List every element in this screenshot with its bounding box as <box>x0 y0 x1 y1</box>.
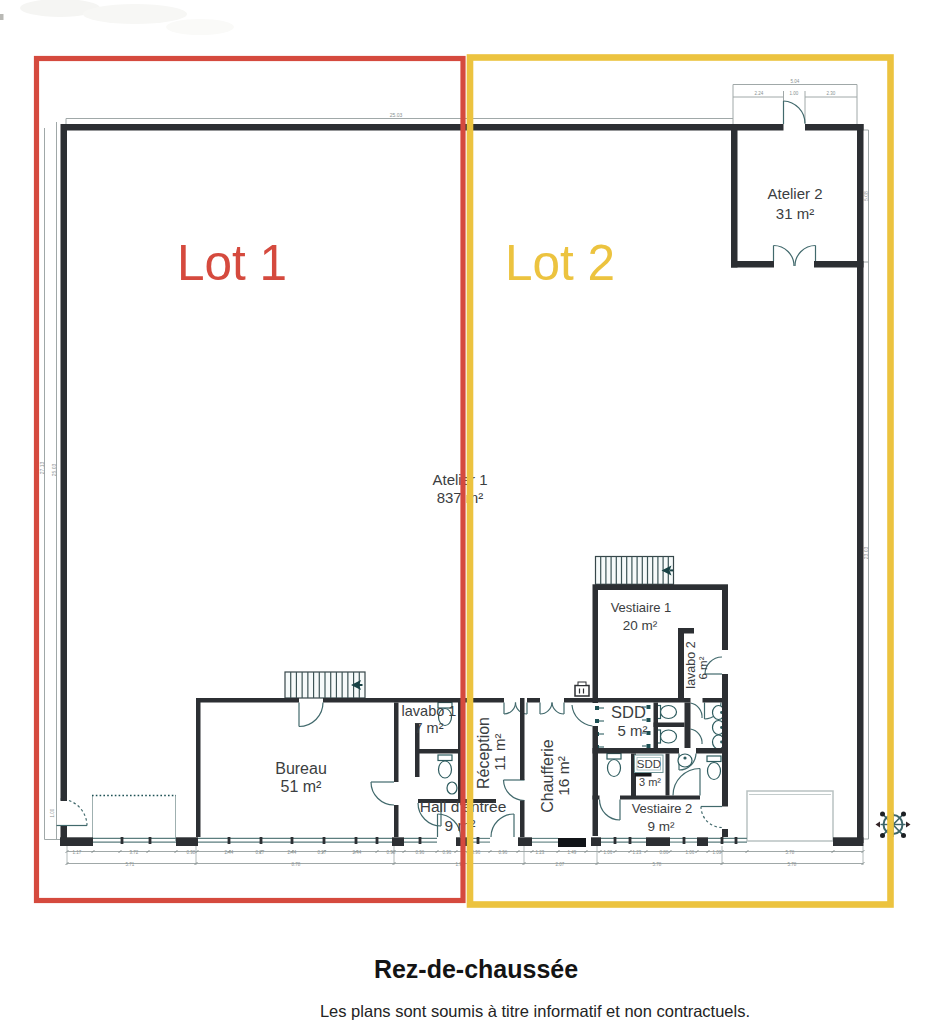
svg-text:0.98: 0.98 <box>387 850 396 855</box>
svg-text:31 m²: 31 m² <box>776 205 814 222</box>
svg-text:2.30: 2.30 <box>827 91 836 96</box>
svg-text:SDD: SDD <box>637 758 661 770</box>
svg-text:1.00: 1.00 <box>713 850 722 855</box>
svg-text:Lot 1: Lot 1 <box>177 235 287 290</box>
svg-text:SDD: SDD <box>611 703 646 721</box>
svg-text:5.78: 5.78 <box>788 862 797 867</box>
svg-text:6 m²: 6 m² <box>697 656 709 679</box>
svg-text:Chaufferie: Chaufferie <box>539 739 556 813</box>
svg-text:1.17: 1.17 <box>73 850 82 855</box>
svg-text:1.06: 1.06 <box>686 850 695 855</box>
svg-text:lavabo 1: lavabo 1 <box>402 703 457 719</box>
svg-text:5.78: 5.78 <box>653 862 662 867</box>
svg-text:0.96: 0.96 <box>499 850 508 855</box>
svg-text:Bureau: Bureau <box>275 760 327 777</box>
svg-text:Vestiaire 1: Vestiaire 1 <box>611 600 672 615</box>
svg-text:1.00: 1.00 <box>790 91 799 96</box>
svg-text:27.13: 27.13 <box>39 462 45 475</box>
svg-text:5.78: 5.78 <box>786 850 795 855</box>
svg-text:1.00: 1.00 <box>50 808 55 817</box>
svg-text:3 m²: 3 m² <box>639 776 661 788</box>
svg-text:Lot 2: Lot 2 <box>505 235 615 290</box>
svg-text:Vestiaire 2: Vestiaire 2 <box>632 801 693 816</box>
svg-text:5 m²: 5 m² <box>618 722 648 739</box>
svg-text:25.03: 25.03 <box>390 112 403 118</box>
svg-text:9 m²: 9 m² <box>648 819 676 834</box>
svg-text:16 m²: 16 m² <box>555 756 572 796</box>
svg-text:5.71: 5.71 <box>126 862 135 867</box>
svg-text:0.96: 0.96 <box>416 850 425 855</box>
svg-text:0.96: 0.96 <box>443 850 452 855</box>
svg-text:1.23: 1.23 <box>633 850 642 855</box>
svg-text:Les plans sont soumis à titre: Les plans sont soumis à titre informatif… <box>320 1002 750 1020</box>
svg-text:2.24: 2.24 <box>755 91 764 96</box>
svg-text:0.98: 0.98 <box>187 850 196 855</box>
svg-text:7 m²: 7 m² <box>415 720 444 736</box>
svg-text:1.23: 1.23 <box>536 850 545 855</box>
svg-text:5.04: 5.04 <box>791 79 800 84</box>
svg-text:20 m²: 20 m² <box>623 618 658 633</box>
svg-text:1.06: 1.06 <box>604 850 613 855</box>
svg-text:25.03: 25.03 <box>51 464 57 477</box>
svg-text:8.78: 8.78 <box>292 862 301 867</box>
svg-text:Atelier 2: Atelier 2 <box>767 185 822 202</box>
svg-text:11 m²: 11 m² <box>491 733 508 770</box>
svg-text:837 m²: 837 m² <box>437 489 484 506</box>
svg-text:1.49: 1.49 <box>568 850 577 855</box>
svg-text:2.07: 2.07 <box>556 862 565 867</box>
svg-text:Atelier 1: Atelier 1 <box>432 471 487 488</box>
svg-text:Rez-de-chaussée: Rez-de-chaussée <box>374 955 578 983</box>
svg-text:Réception: Réception <box>475 717 492 789</box>
svg-text:3.72: 3.72 <box>130 850 139 855</box>
svg-text:0.86: 0.86 <box>660 850 669 855</box>
svg-text:51 m²: 51 m² <box>281 778 323 795</box>
svg-text:lavabo 2: lavabo 2 <box>684 641 698 688</box>
svg-text:2.44: 2.44 <box>288 850 297 855</box>
svg-text:2.44: 2.44 <box>225 850 234 855</box>
